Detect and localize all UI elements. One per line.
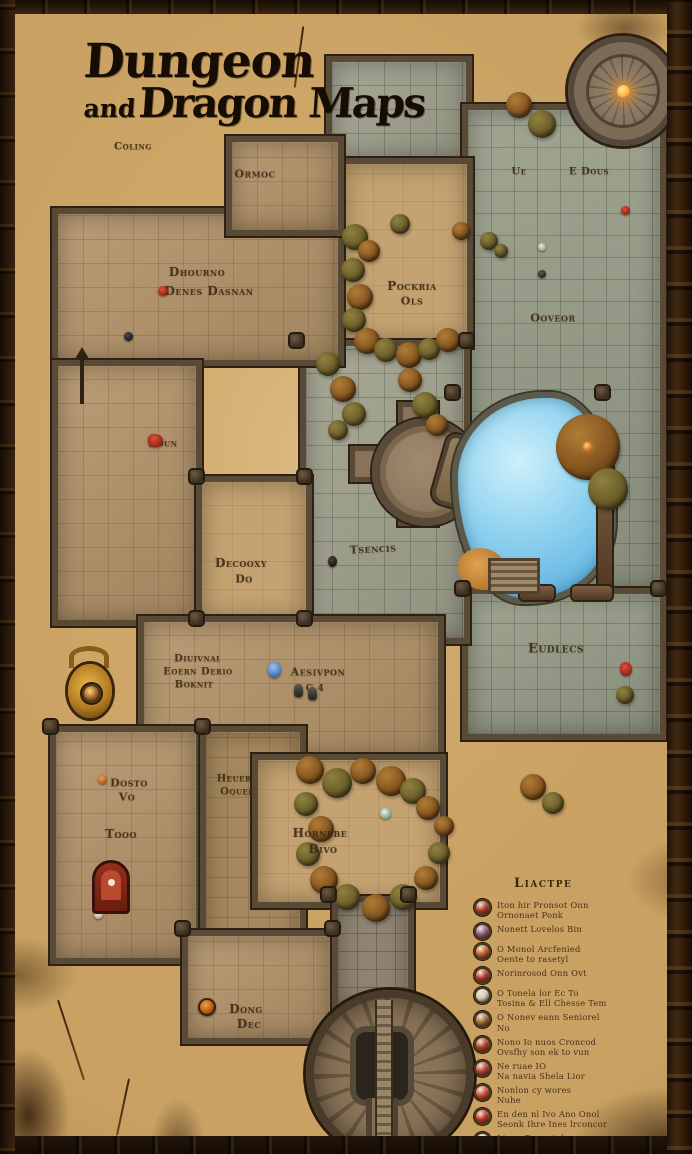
legend-gem-icon — [474, 1011, 491, 1028]
legend-item-text: O Monol ArcfeniedOente to rasetyl — [497, 943, 581, 964]
map-title-and: and — [83, 94, 137, 123]
legend-item: Ne ruae IONa navia Shela Lior — [474, 1060, 682, 1081]
room-decooxy — [196, 476, 312, 624]
red-marker-icon — [158, 286, 168, 296]
label-ue: Ue — [511, 167, 526, 178]
token-figure-icon — [294, 684, 303, 697]
frame-right — [667, 0, 692, 1154]
label-dec: Dec — [237, 1017, 261, 1031]
label-eoernberio: Eoern Derio — [163, 667, 232, 678]
bush — [328, 420, 348, 440]
bush — [294, 792, 318, 816]
dark-marker-icon — [124, 332, 133, 341]
bush — [347, 284, 373, 310]
legend-gem-icon — [474, 899, 491, 916]
label-diuivnai: Diuivnai — [174, 654, 220, 665]
legend-gem-icon — [474, 1060, 491, 1077]
label-decooxy-2: Do — [235, 573, 253, 586]
wall-pillar — [596, 386, 609, 399]
amulet-icon — [64, 648, 116, 722]
legend-item-text: Ne ruae IONa navia Shela Lior — [497, 1060, 585, 1081]
label-eudlecs: Eudlecs — [528, 642, 584, 657]
legend-gem-icon — [474, 1084, 491, 1101]
wall-pillar — [176, 922, 189, 935]
label-coling: Coling — [114, 142, 152, 153]
bush — [434, 816, 454, 836]
room-boun — [52, 360, 202, 626]
bush — [452, 222, 470, 240]
label-ormoc: Ormoc — [235, 168, 276, 181]
room-eudlecs — [462, 588, 666, 740]
wall-pillar — [44, 720, 57, 733]
wall-pillar — [456, 582, 469, 595]
legend-item: Iton hir Pronsot OnnOrnonaet Ponk — [474, 899, 682, 920]
legend-item: O Tonela lor Ec ToTosina & Ell Chesse Te… — [474, 987, 682, 1008]
wall-pillar — [298, 470, 311, 483]
legend-gem-icon — [474, 923, 491, 940]
red-marker-icon — [620, 662, 632, 676]
legend-item: Nonlon cy woresNuhe — [474, 1084, 682, 1105]
bush — [390, 214, 410, 234]
bush — [398, 368, 422, 392]
label-e-dous: E Dous — [569, 167, 609, 178]
white-marker-icon — [380, 808, 391, 819]
dark-marker-icon — [538, 270, 546, 278]
legend-item: O Monol ArcfeniedOente to rasetyl — [474, 943, 682, 964]
keyhole-walkway — [375, 1000, 393, 1150]
blue-marker-icon — [268, 662, 281, 678]
label-dhourno: Dhourno — [169, 265, 225, 279]
amulet-gem — [82, 684, 101, 703]
wall-pillar — [460, 334, 473, 347]
tree — [588, 468, 628, 510]
wall-pillar — [446, 386, 459, 399]
bush — [528, 110, 556, 138]
wall-pillar — [298, 612, 311, 625]
map-legend: Liactpe Iton hir Pronsot OnnOrnonaet Pon… — [474, 876, 682, 1154]
bush — [506, 92, 532, 118]
bush — [334, 884, 360, 910]
white-marker-icon — [538, 243, 546, 251]
legend-item: En den nl Ivo Ano OnolSeonk Ihre Ines lr… — [474, 1108, 682, 1129]
wall-pillar — [290, 334, 303, 347]
label-pockria-2: Ols — [401, 295, 423, 308]
tower-beacon-icon — [617, 85, 630, 98]
bush — [330, 376, 356, 402]
bush — [316, 352, 340, 376]
label-boknit: Boknit — [175, 680, 214, 691]
frame-top — [0, 0, 692, 14]
bush — [322, 768, 352, 798]
wall-pillar — [326, 922, 339, 935]
frame-left — [0, 0, 15, 1154]
bush — [358, 240, 380, 262]
bush — [494, 244, 508, 258]
bush — [520, 774, 546, 800]
orange-ring-marker-icon — [198, 998, 216, 1016]
bush — [542, 792, 564, 814]
bush — [342, 402, 366, 426]
legend-item-text: O Nonev eann SeniorelNo — [497, 1011, 600, 1032]
label-vo: Vo — [119, 791, 136, 804]
label-dosto: Dosto — [110, 777, 148, 790]
label-dong: Dong — [229, 1002, 263, 1016]
bush — [426, 414, 448, 436]
legend-item-text: Iton hir Pronsot OnnOrnonaet Ponk — [497, 899, 589, 920]
red-marker-icon — [621, 206, 630, 215]
legend-item-text: Norinrosod Onn Ovt — [497, 967, 587, 978]
bush — [362, 894, 390, 922]
label-decooxy: Decooxy — [215, 556, 267, 570]
bush — [428, 842, 450, 864]
legend-items: Iton hir Pronsot OnnOrnonaet PonkNonett … — [474, 899, 682, 1154]
dungeon-map-poster: Coling Ormoc Dhourno Denes Dasnan Pockri… — [0, 0, 692, 1154]
label-ooveor: Ooveor — [530, 312, 575, 325]
bush — [296, 756, 324, 784]
wall-pillar — [322, 888, 335, 901]
map-title-rest: Dragon Maps — [137, 79, 426, 127]
legend-gem-icon — [474, 1036, 491, 1053]
legend-gem-icon — [474, 967, 491, 984]
wall-pillar — [190, 470, 203, 483]
spear-icon — [80, 352, 84, 404]
label-heuer: Heuer — [217, 774, 252, 785]
pool-stairs — [488, 558, 540, 594]
legend-item: Nono Io nuos CroncodOvsfhy son ek to vun — [474, 1036, 682, 1057]
legend-item-text: Nonett Lovelos Bin — [497, 923, 582, 934]
legend-item: Norinrosod Onn Ovt — [474, 967, 682, 984]
wall-pillar — [652, 582, 665, 595]
token-figure-icon — [308, 687, 317, 700]
red-creature-marker-icon — [148, 434, 163, 447]
label-tsencis: Tsencis — [349, 541, 396, 556]
legend-gem-icon — [474, 943, 491, 960]
wall-pillar — [196, 720, 209, 733]
label-oquel: Oquel — [220, 787, 254, 798]
orange-gem-icon — [583, 442, 592, 451]
bush — [414, 866, 438, 890]
pool-wall-south — [572, 586, 612, 600]
wall-pillar — [402, 888, 415, 901]
map-title: Dungeon andDragon Maps — [84, 40, 424, 123]
label-denes-dasnan: Denes Dasnan — [164, 284, 253, 298]
bush — [416, 796, 440, 820]
label-bivo: Bivo — [309, 842, 338, 856]
legend-item: Nonett Lovelos Bin — [474, 923, 682, 940]
map-title-line1: Dungeon — [82, 40, 425, 83]
bush — [341, 258, 365, 282]
legend-gem-icon — [474, 987, 491, 1004]
bush — [350, 758, 376, 784]
legend-item-text: Nono Io nuos CroncodOvsfhy son ek to vun — [497, 1036, 596, 1057]
label-pockria: Pockria — [387, 279, 436, 293]
legend-title: Liactpe — [514, 876, 682, 891]
bush — [374, 338, 398, 362]
wall-pillar — [190, 612, 203, 625]
frame-bottom — [0, 1136, 692, 1154]
legend-gem-icon — [474, 1108, 491, 1125]
label-hornebe: Hornebe — [293, 826, 348, 840]
bush — [436, 328, 460, 352]
map-title-line2: andDragon Maps — [83, 85, 426, 123]
label-aesivpon: Aesivpon — [291, 666, 346, 679]
legend-item-text: En den nl Ivo Ano OnolSeonk Ihre Ines lr… — [497, 1108, 607, 1129]
legend-item: O Nonev eann SeniorelNo — [474, 1011, 682, 1032]
room-ormoc — [226, 136, 344, 236]
dark-marker-icon — [328, 556, 337, 567]
round-tower — [568, 36, 678, 146]
label-tooo: Tooo — [105, 827, 137, 841]
shrine-icon — [92, 860, 130, 914]
legend-item-text: Nonlon cy woresNuhe — [497, 1084, 571, 1105]
legend-item-text: O Tonela lor Ec ToTosina & Ell Chesse Te… — [497, 987, 607, 1008]
orange-marker-icon — [98, 775, 107, 784]
bush — [616, 686, 634, 704]
